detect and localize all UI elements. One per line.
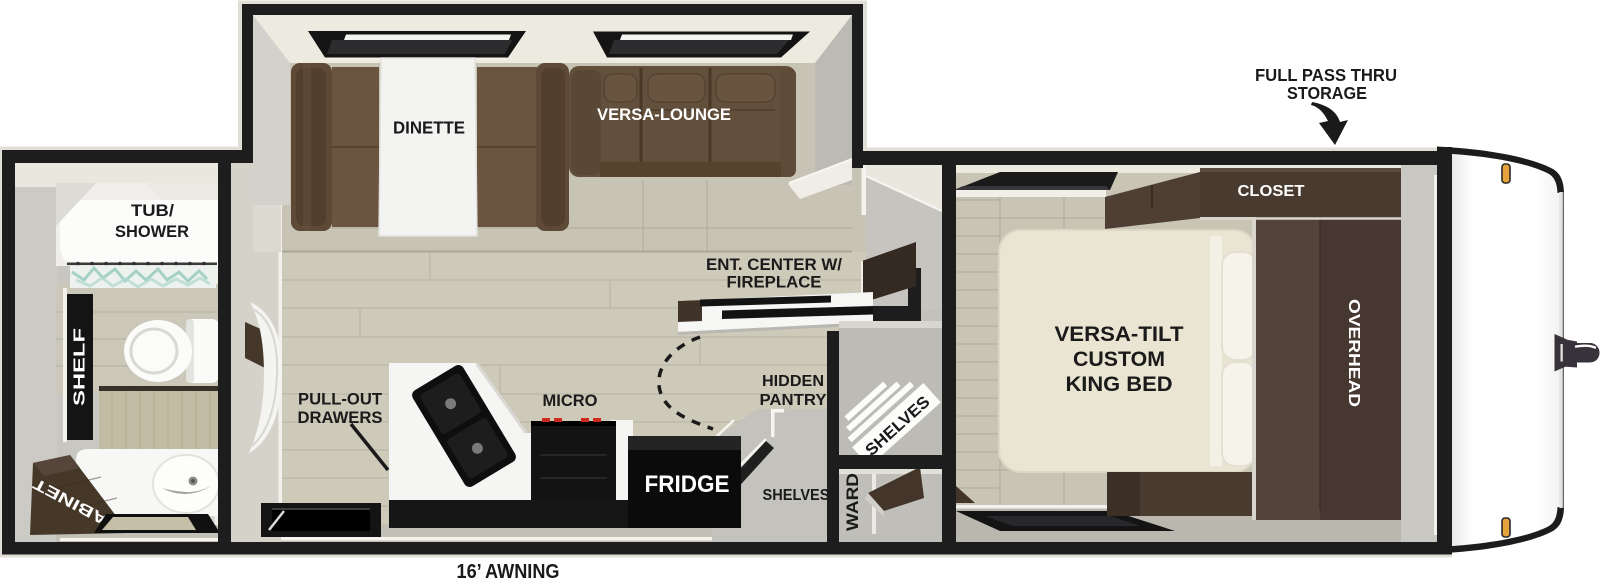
svg-text:HIDDEN: HIDDEN: [762, 373, 824, 390]
svg-text:CUSTOM: CUSTOM: [1073, 347, 1165, 371]
svg-text:PANTRY: PANTRY: [760, 392, 828, 409]
svg-text:ENT. CENTER W/: ENT. CENTER W/: [706, 256, 842, 274]
svg-text:DINETTE: DINETTE: [393, 118, 465, 138]
svg-text:VERSA-LOUNGE: VERSA-LOUNGE: [597, 105, 731, 124]
svg-text:PULL-OUT: PULL-OUT: [298, 390, 383, 409]
svg-text:STORAGE: STORAGE: [1287, 83, 1367, 103]
svg-text:WARD: WARD: [844, 473, 862, 531]
svg-text:KING BED: KING BED: [1066, 372, 1173, 396]
svg-text:VERSA-TILT: VERSA-TILT: [1055, 322, 1184, 346]
svg-text:FIREPLACE: FIREPLACE: [727, 274, 822, 292]
svg-text:OVERHEAD: OVERHEAD: [1345, 299, 1362, 407]
svg-text:TUB/: TUB/: [131, 201, 174, 220]
svg-text:CLOSET: CLOSET: [1238, 183, 1305, 200]
svg-text:SHELVES: SHELVES: [763, 487, 830, 504]
svg-text:MICRO: MICRO: [543, 391, 598, 410]
svg-text:16’ AWNING: 16’ AWNING: [457, 561, 560, 582]
svg-text:SHOWER: SHOWER: [115, 222, 189, 241]
svg-text:FULL PASS THRU: FULL PASS THRU: [1255, 65, 1397, 85]
svg-text:SHELF: SHELF: [72, 328, 89, 406]
svg-text:FRIDGE: FRIDGE: [645, 471, 730, 498]
svg-text:DRAWERS: DRAWERS: [298, 408, 383, 427]
